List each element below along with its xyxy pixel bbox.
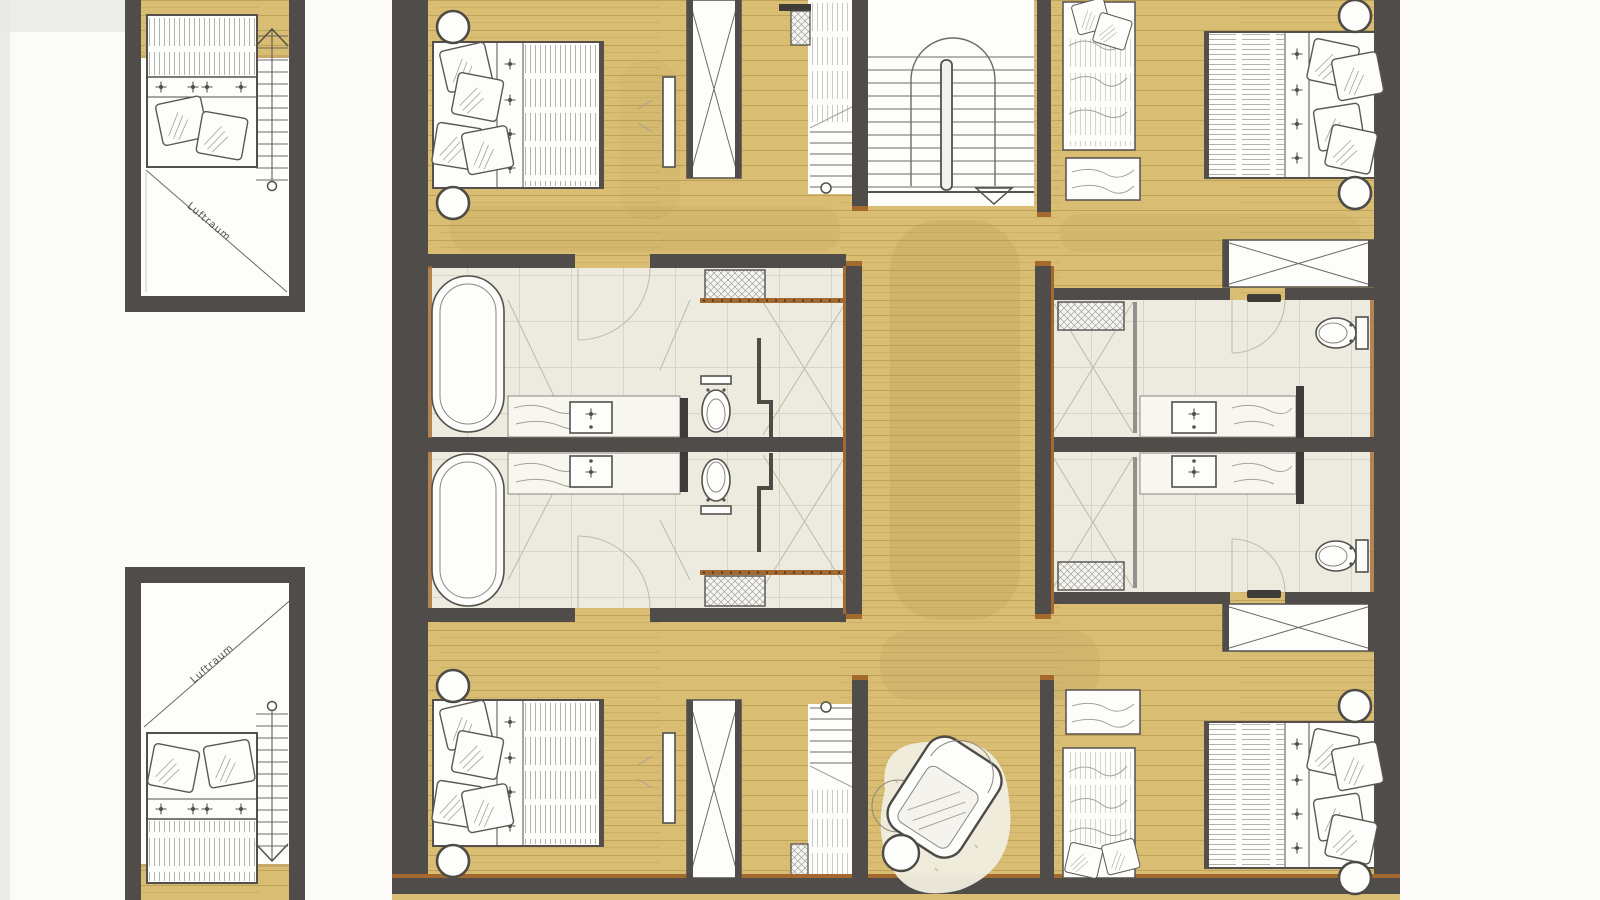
central-staircase [868,0,1034,206]
tower-top-bed [147,15,257,167]
lower-stair-wall-left [852,680,868,878]
tower-top-wall-left [125,0,141,312]
nightstand [1339,177,1371,209]
double-bed [1205,32,1384,178]
outer-wall-bottom [392,878,1400,894]
double-bed [1205,722,1384,868]
tower-room-bottom: Luftraum [125,567,305,900]
toilet-icon [1316,317,1368,349]
closet [1223,240,1374,287]
bottom-wood-edge [392,894,1400,900]
door-leaf [1247,590,1281,598]
bedroom-bottom-left [431,670,741,878]
bath-lr-bottom-wall-b [1285,592,1374,604]
tower-top-wall-bottom [125,296,305,312]
bath-ll-bottom-wall-b [650,608,846,622]
bath-ul-top-wall-a [428,254,575,268]
nightstand [437,187,469,219]
stair-divider [941,60,952,190]
double-bed [431,700,604,846]
toilet-icon [701,459,731,514]
mirror-panel [663,733,675,823]
vanity [508,452,688,494]
nightstand [1339,862,1371,894]
scan-edge-corner [0,0,125,32]
corridor-wall-left [846,266,862,614]
corridor-wall-right [1035,266,1051,614]
stairs-newel [268,702,277,711]
bath-ll-bottom-wall-a [428,608,575,622]
tower-bottom-bed [147,733,257,883]
bath-ul-top-wall-b [650,254,846,268]
wardrobe [687,700,741,878]
bath-ur-top-wall-b [1285,288,1374,300]
toilet-icon [1316,540,1368,572]
tower-bottom-wall-right [289,567,305,900]
mirror-panel [663,77,675,167]
bench [1066,690,1140,734]
bench [1066,158,1140,200]
nightstand [437,845,469,877]
void-below [810,0,854,122]
main-building [392,0,1400,900]
door-leaf [1247,294,1281,302]
nightstand [437,670,469,702]
shower-partition [1133,302,1137,433]
floor-plan-drawing: Luftraum Luftraum [0,0,1600,900]
stairs-newel [268,182,277,191]
stairwell-wall-left [852,0,868,206]
tower-bottom-wall-left [125,567,141,900]
stairwell-wall-right [1037,0,1051,212]
tower-bottom-wall-top [125,567,305,583]
bath-ur-top-wall-a [1051,288,1230,300]
vanity [508,396,688,438]
niche [791,844,808,878]
bath-right-center-wall [1051,437,1374,452]
lower-bedroom-wall-left [1040,680,1054,878]
ottoman [883,835,919,871]
shower-partition [1133,457,1137,588]
tower-room-top: Luftraum [125,0,305,312]
tower-top-wall-right [289,0,305,312]
nightstand [1339,690,1371,722]
floor-plan-page: Luftraum Luftraum [0,0,1600,900]
wardrobe [687,0,741,178]
niche [791,11,810,45]
scan-edge-left [0,0,10,900]
daybed [1063,0,1135,150]
nightstand [437,11,469,43]
double-bed [431,42,604,188]
closet [1223,604,1374,651]
void-below [810,790,854,878]
nightstand [1339,0,1371,32]
bath-lr-bottom-wall-a [1051,592,1230,604]
daybed [1063,748,1140,879]
stair-lintel [779,4,811,11]
bath-left-center-wall [392,437,846,452]
toilet-icon [701,376,731,432]
